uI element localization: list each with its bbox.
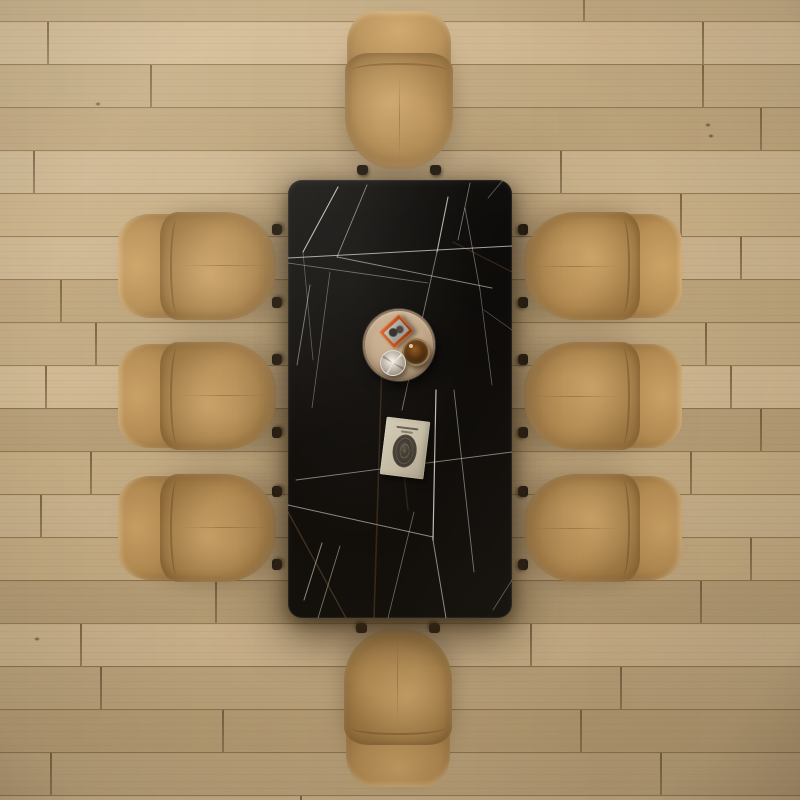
chair-right-3 (522, 473, 682, 583)
plank-joint (222, 710, 224, 753)
plank-joint (750, 538, 752, 581)
plank-joint (100, 667, 102, 710)
plank-joint (45, 366, 47, 409)
plank-joint (580, 710, 582, 753)
chair-foot (272, 486, 282, 497)
chair-top (344, 11, 454, 171)
plank-joint (90, 452, 92, 495)
chair-left-2 (118, 341, 278, 451)
plank-joint (660, 753, 662, 796)
chair-foot (272, 354, 282, 365)
chair-seam (352, 63, 446, 77)
chair-foot (272, 559, 282, 570)
floor-plank-row (0, 795, 800, 800)
chair-right-2 (522, 341, 682, 451)
chair-right-1 (522, 211, 682, 321)
chair-foot (518, 224, 528, 235)
plank-joint (33, 151, 35, 194)
wood-knot (708, 134, 714, 138)
magazine-title-mark (396, 426, 418, 431)
plank-joint (300, 796, 302, 800)
chair-foot (518, 559, 528, 570)
magazine (380, 417, 431, 480)
chair-foot (518, 354, 528, 365)
serving-tray (363, 309, 435, 381)
chair-bottom (343, 627, 453, 787)
room-scene (0, 0, 800, 800)
plank-joint (700, 581, 702, 624)
plank-joint (60, 280, 62, 323)
chair-foot (357, 165, 368, 175)
chair-foot (518, 427, 528, 438)
plank-joint (620, 667, 622, 710)
chair-foot (272, 297, 282, 308)
dining-table-marble-top (288, 180, 512, 618)
chair-left-3 (118, 473, 278, 583)
plank-joint (730, 366, 732, 409)
plank-joint (702, 65, 704, 108)
wood-knot (95, 102, 101, 106)
plank-joint (705, 323, 707, 366)
plank-joint (583, 0, 585, 22)
chair-foot (430, 165, 441, 175)
chair-seam (616, 481, 630, 575)
whiskey-glass (402, 338, 430, 366)
wood-knot (705, 123, 711, 127)
plank-joint (50, 753, 52, 796)
chair-seam (351, 721, 445, 735)
plank-joint (95, 323, 97, 366)
plank-joint (760, 409, 762, 452)
chair-foot (272, 224, 282, 235)
chair-foot (356, 623, 367, 633)
plank-joint (150, 65, 152, 108)
chair-foot (518, 486, 528, 497)
chair-seam (616, 349, 630, 443)
chair-seam (170, 219, 184, 313)
plank-joint (530, 624, 532, 667)
wood-knot (34, 637, 40, 641)
chair-seam (616, 219, 630, 313)
plank-joint (702, 22, 704, 65)
box-artwork (383, 318, 409, 343)
chair-left-1 (118, 211, 278, 321)
fingerprint-artwork (391, 434, 419, 470)
plank-joint (740, 237, 742, 280)
plank-joint (40, 495, 42, 538)
plank-joint (690, 452, 692, 495)
chair-foot (518, 297, 528, 308)
plank-joint (80, 624, 82, 667)
chair-foot (272, 427, 282, 438)
crystal-glass (380, 350, 406, 376)
plank-joint (760, 108, 762, 151)
chair-seam (170, 349, 184, 443)
chair-seam (170, 481, 184, 575)
chair-foot (429, 623, 440, 633)
magazine-subtitle-mark (401, 430, 413, 433)
marble-veins (288, 180, 512, 618)
plank-joint (47, 22, 49, 65)
plank-joint (560, 151, 562, 194)
